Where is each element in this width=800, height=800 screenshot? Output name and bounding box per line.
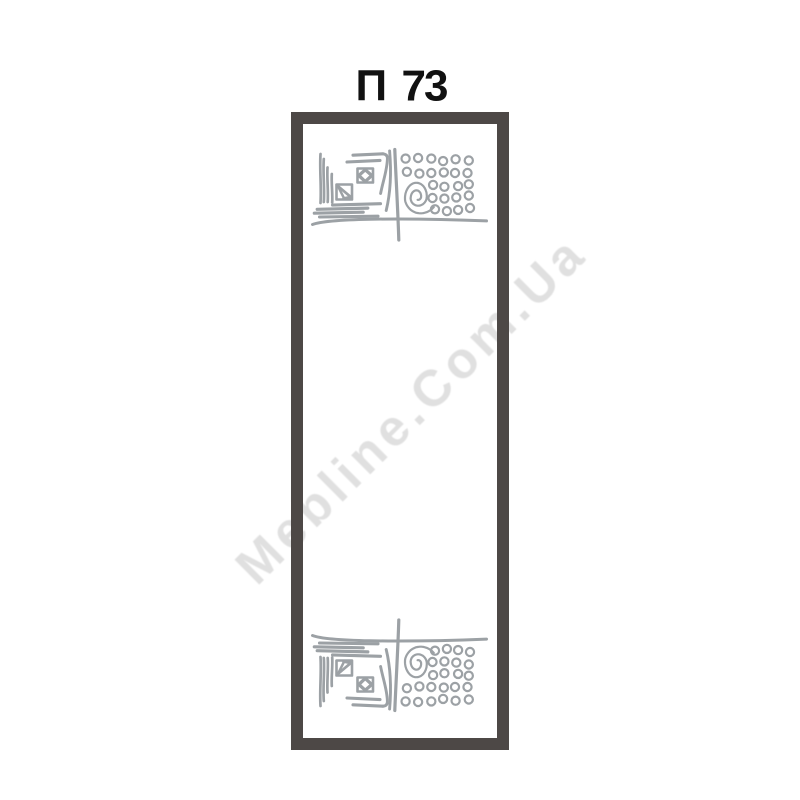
svg-text:Mebline.Com.Ua: Mebline.Com.Ua xyxy=(224,227,594,595)
svg-text:П 73: П 73 xyxy=(356,62,449,111)
